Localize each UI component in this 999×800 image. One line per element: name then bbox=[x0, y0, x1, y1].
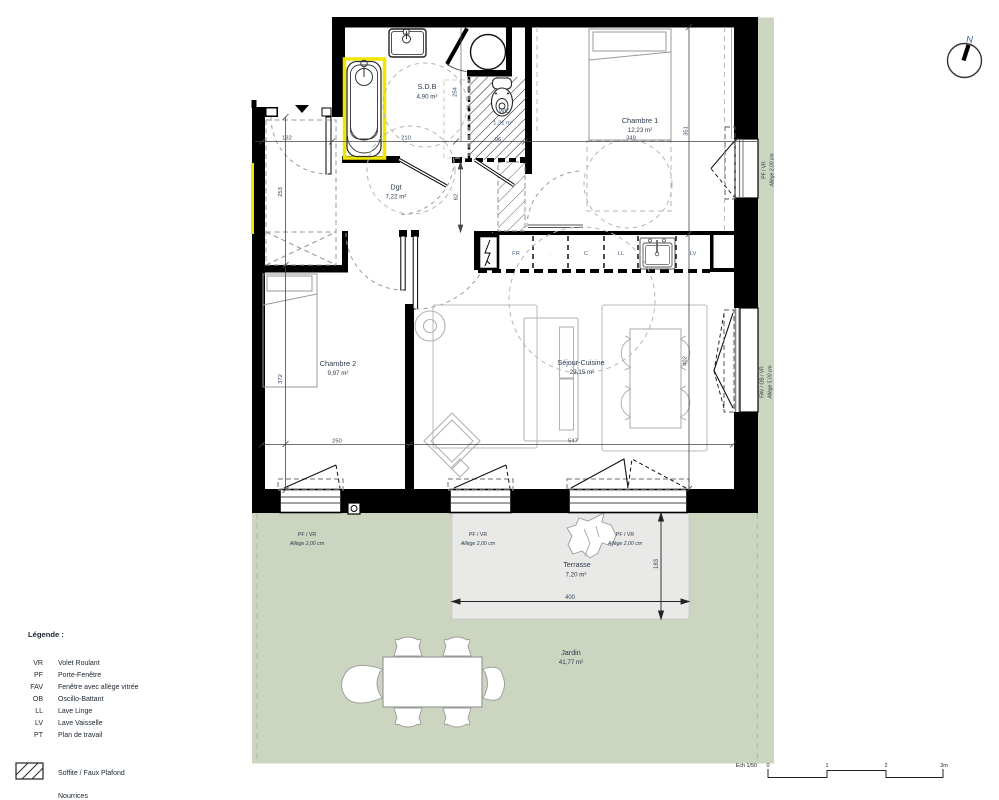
svg-text:OB: OB bbox=[33, 696, 43, 703]
svg-text:Allège 5,00 cm: Allège 5,00 cm bbox=[768, 365, 774, 399]
svg-text:WC: WC bbox=[499, 108, 510, 115]
svg-text:349: 349 bbox=[626, 136, 636, 142]
svg-text:N: N bbox=[966, 35, 973, 46]
svg-text:VR: VR bbox=[33, 660, 43, 667]
svg-text:254: 254 bbox=[453, 86, 459, 96]
svg-text:351: 351 bbox=[684, 126, 690, 136]
svg-text:372: 372 bbox=[278, 374, 284, 384]
svg-text:LL: LL bbox=[35, 708, 43, 715]
svg-text:Séjour-Cuisine: Séjour-Cuisine bbox=[557, 358, 604, 367]
svg-text:7,20 m²: 7,20 m² bbox=[566, 572, 587, 579]
svg-text:3m: 3m bbox=[940, 763, 948, 769]
svg-text:PF / VR: PF / VR bbox=[298, 532, 316, 538]
svg-text:250: 250 bbox=[332, 439, 342, 445]
svg-text:Oscillo-Battant: Oscillo-Battant bbox=[58, 696, 104, 703]
svg-text:LL: LL bbox=[618, 251, 625, 257]
svg-text:210: 210 bbox=[401, 136, 411, 142]
svg-text:9,97 m²: 9,97 m² bbox=[328, 370, 349, 377]
svg-text:Jardin: Jardin bbox=[561, 648, 581, 657]
svg-text:Allège 2,00 cm: Allège 2,00 cm bbox=[770, 153, 776, 187]
svg-text:Ech 1/50: Ech 1/50 bbox=[736, 763, 757, 769]
svg-text:183: 183 bbox=[654, 558, 660, 569]
svg-text:7,22 m²: 7,22 m² bbox=[386, 194, 407, 201]
svg-text:547: 547 bbox=[568, 439, 578, 445]
svg-text:62: 62 bbox=[454, 194, 460, 200]
svg-text:Porte-Fenêtre: Porte-Fenêtre bbox=[58, 672, 101, 679]
svg-text:Soffite / Faux Plafond: Soffite / Faux Plafond bbox=[58, 770, 125, 777]
svg-text:Lave Vaisselle: Lave Vaisselle bbox=[58, 720, 103, 727]
svg-text:253: 253 bbox=[278, 187, 284, 197]
svg-text:4,90 m²: 4,90 m² bbox=[417, 94, 438, 101]
svg-text:96: 96 bbox=[495, 137, 501, 143]
svg-text:PF / VR: PF / VR bbox=[616, 532, 634, 538]
svg-text:LV: LV bbox=[690, 251, 697, 257]
svg-text:41,77 m²: 41,77 m² bbox=[559, 659, 583, 666]
svg-text:402: 402 bbox=[683, 356, 689, 366]
svg-text:PT: PT bbox=[34, 732, 44, 739]
svg-text:LV: LV bbox=[35, 720, 43, 727]
svg-text:Lave Linge: Lave Linge bbox=[58, 708, 92, 715]
svg-text:PF: PF bbox=[34, 672, 43, 679]
svg-text:Légende :: Légende : bbox=[28, 630, 64, 639]
svg-text:0: 0 bbox=[767, 763, 770, 769]
svg-text:Nourrices: Nourrices bbox=[58, 793, 88, 800]
svg-text:1,31 m²: 1,31 m² bbox=[493, 121, 513, 127]
svg-text:Allège 2,00 cm: Allège 2,00 cm bbox=[289, 541, 325, 547]
svg-text:Chambre 1: Chambre 1 bbox=[622, 116, 659, 125]
svg-text:Plan de travail: Plan de travail bbox=[58, 732, 103, 739]
svg-text:1: 1 bbox=[826, 763, 829, 769]
svg-text:PF / VR: PF / VR bbox=[469, 532, 487, 538]
svg-text:2: 2 bbox=[885, 763, 888, 769]
svg-text:12,23 m²: 12,23 m² bbox=[628, 127, 652, 134]
svg-text:Fenêtre avec allège vitrée: Fenêtre avec allège vitrée bbox=[58, 684, 139, 691]
svg-text:400: 400 bbox=[565, 595, 576, 601]
svg-text:Chambre 2: Chambre 2 bbox=[320, 359, 357, 368]
svg-text:23,15 m²: 23,15 m² bbox=[570, 369, 594, 376]
svg-text:Terrasse: Terrasse bbox=[563, 560, 591, 569]
svg-text:FR: FR bbox=[512, 251, 520, 257]
svg-text:132: 132 bbox=[282, 136, 292, 142]
svg-text:FAV / OB / VR: FAV / OB / VR bbox=[760, 366, 766, 398]
svg-text:Volet Roulant: Volet Roulant bbox=[58, 660, 100, 667]
svg-text:Allège 2,00 cm: Allège 2,00 cm bbox=[607, 541, 643, 547]
svg-text:FAV: FAV bbox=[30, 684, 43, 691]
svg-text:Dgt: Dgt bbox=[390, 183, 401, 192]
svg-text:C: C bbox=[584, 251, 588, 257]
svg-text:PF / VR: PF / VR bbox=[762, 161, 768, 179]
svg-text:S.D.B: S.D.B bbox=[418, 82, 437, 91]
svg-text:Allège 2,00 cm: Allège 2,00 cm bbox=[460, 541, 496, 547]
